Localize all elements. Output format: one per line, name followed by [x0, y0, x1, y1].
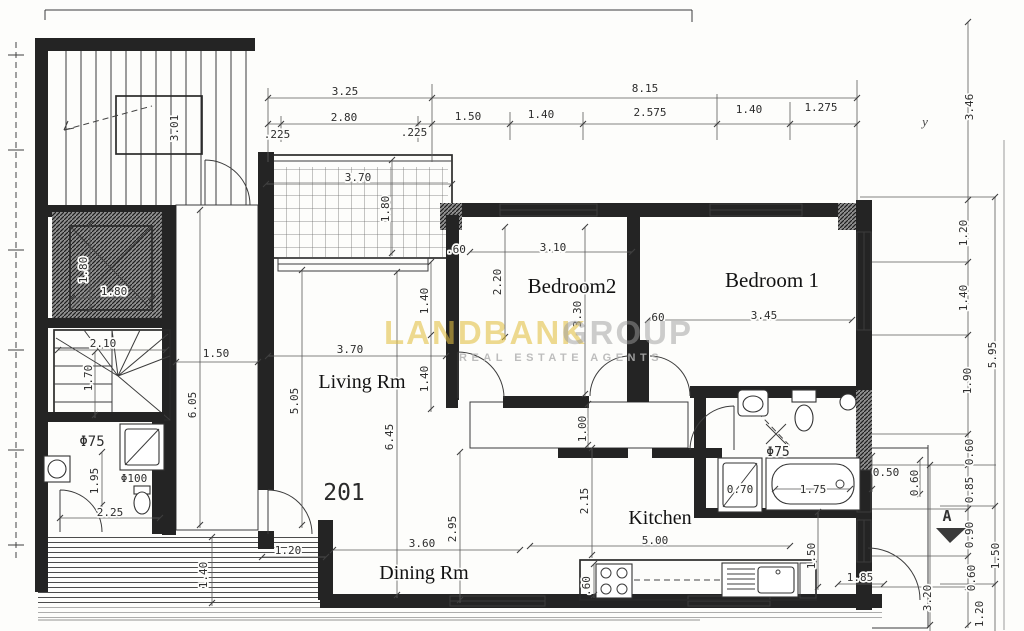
- dim-label: 3.25: [332, 85, 359, 98]
- dim-label: Φ100: [121, 472, 148, 485]
- dim-label: 1.85: [847, 571, 874, 584]
- dim-label: .60: [446, 243, 466, 256]
- dim-label: 2.15: [578, 488, 591, 515]
- entry-door-swing: [268, 490, 312, 534]
- dim-label: 2.20: [491, 269, 504, 296]
- dim-label: 1.20: [973, 601, 986, 628]
- dim-label: 2.575: [633, 106, 666, 119]
- dim-label: 5.00: [642, 534, 669, 547]
- dim-label: 1.40: [957, 285, 970, 312]
- dim-label: 1.40: [736, 103, 763, 116]
- section-marker: A: [942, 507, 951, 525]
- dim-label: 3.45: [751, 309, 778, 322]
- dim-label: 3.20: [921, 585, 934, 612]
- dim-label: 1.40: [418, 288, 431, 315]
- stair-door-swing: [205, 160, 250, 205]
- room-label-living: Living Rm: [318, 371, 406, 393]
- water-heater: [840, 394, 856, 410]
- room-label-bedroom1: Bedroom 1: [725, 268, 819, 292]
- dim-label: 2.10: [90, 337, 117, 350]
- dim-label: 1.40: [528, 108, 555, 121]
- dim-label: 1.75: [800, 483, 827, 496]
- dim-label: 5.95: [986, 342, 999, 369]
- dim-label: 1.80: [77, 257, 90, 284]
- dim-label: 1.50: [989, 543, 1002, 570]
- dim-label: 3.01: [168, 115, 181, 142]
- dim-label: 1.275: [804, 101, 837, 114]
- elevator: [52, 212, 168, 322]
- section-arrow: [936, 528, 966, 543]
- dim-label: 0.60: [963, 439, 976, 466]
- dim-label: 0.85: [963, 477, 976, 504]
- bath-door-swing: [60, 490, 102, 532]
- dim-label: 1.50: [203, 347, 230, 360]
- dim-label: 0.60: [908, 470, 921, 497]
- watermark-brand-secondary: GROUP: [562, 314, 693, 351]
- watermark-tagline: REAL ESTATE AGENTS: [459, 352, 663, 364]
- dim-label: 3.46: [963, 94, 976, 121]
- stair-core: [35, 38, 255, 592]
- dim-label: 0.50: [873, 466, 900, 479]
- room-label-dining: Dining Rm: [379, 562, 469, 584]
- dim-label: 1.40: [418, 366, 431, 393]
- dim-label: 6.05: [186, 392, 199, 419]
- dim-label: 3.60: [409, 537, 436, 550]
- dim-label: 0.60: [965, 565, 978, 592]
- dim-label: 3.10: [540, 241, 567, 254]
- dim-label: 1.90: [961, 368, 974, 395]
- dim-label: 6.45: [383, 424, 396, 451]
- room-label-bedroom2: Bedroom2: [528, 274, 617, 298]
- dim-label: 1.50: [455, 110, 482, 123]
- dim-label: 1.80: [379, 196, 392, 223]
- dim-label: 2.80: [331, 111, 358, 124]
- stove: [596, 564, 632, 598]
- dim-label: .225: [401, 126, 428, 139]
- dim-label: .60: [580, 576, 593, 596]
- dim-label: 0.70: [727, 483, 754, 496]
- watermark-brand-primary: LANDBANK: [384, 314, 587, 351]
- room-label-kitchen: Kitchen: [628, 507, 691, 529]
- dim-label: 1.50: [805, 543, 818, 570]
- floor-plan-page: 3.25 8.15 .225 2.80 .225 1.50 1.40 2.575…: [0, 0, 1024, 631]
- dim-label: 1.80: [101, 285, 128, 298]
- watermark: LANDBANK GROUP REAL ESTATE AGENTS: [384, 314, 693, 364]
- dim-label: 1.95: [88, 468, 101, 495]
- dim-label: 2.25: [97, 506, 124, 519]
- corridor-floor: [176, 205, 258, 530]
- dim-label: .225: [264, 128, 291, 141]
- staircase-up: [64, 51, 246, 205]
- dim-label: 1.20: [275, 544, 302, 557]
- dim-label: Φ75: [766, 445, 789, 460]
- unit-number: 201: [323, 480, 365, 506]
- dim-label: 1.00: [576, 416, 589, 443]
- dim-label: 5.05: [288, 388, 301, 415]
- dim-label: 3.70: [345, 171, 372, 184]
- dim-label: 8.15: [632, 82, 659, 95]
- dim-label: 0.90: [963, 522, 976, 549]
- dim-label: 2.95: [446, 516, 459, 543]
- dim-label: 3.70: [337, 343, 364, 356]
- toilet: [792, 390, 816, 402]
- floor-plan-drawing: 3.25 8.15 .225 2.80 .225 1.50 1.40 2.575…: [0, 0, 1024, 631]
- dim-label: 1.20: [957, 220, 970, 247]
- dim-label: 1.70: [82, 365, 95, 392]
- dim-label: Φ75: [79, 434, 104, 450]
- dim-label: 1.40: [197, 562, 210, 589]
- axis-marker: y: [920, 114, 928, 129]
